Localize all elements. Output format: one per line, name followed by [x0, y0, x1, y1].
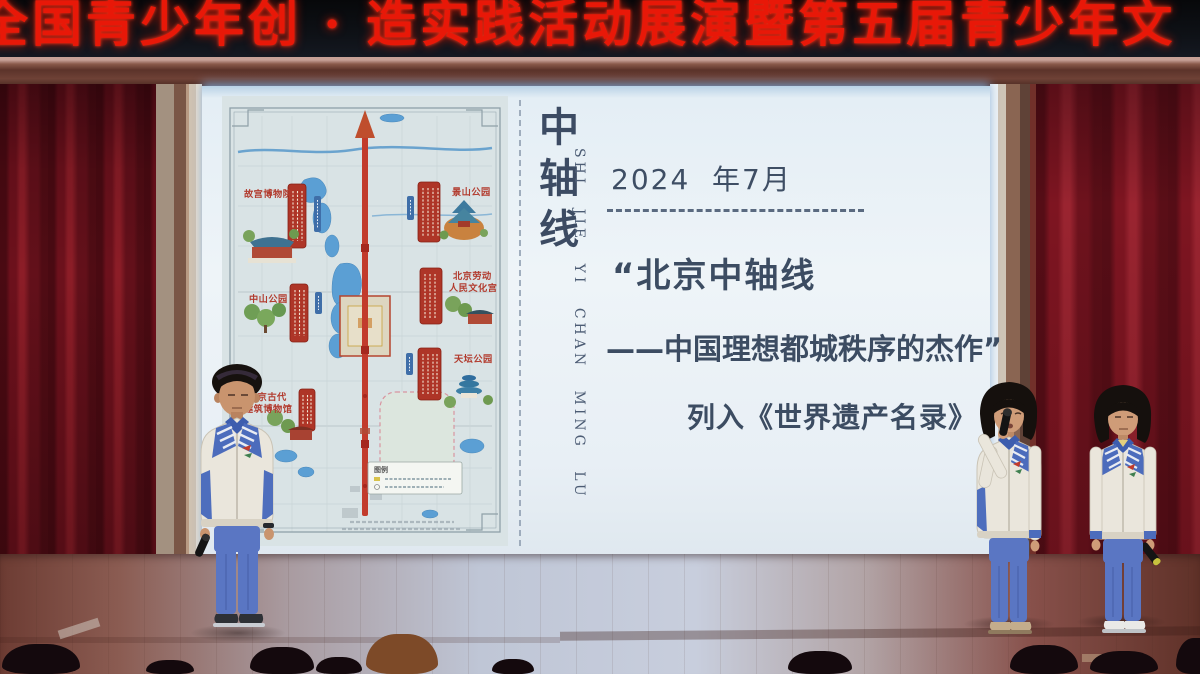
- slide-dashed-rule: [607, 209, 864, 212]
- audience-head: [492, 659, 534, 674]
- curtain-left: [0, 84, 156, 556]
- slide-vertical-divider: [519, 100, 521, 546]
- led-banner: 全国青少年创 · 造实践活动展演暨第五届青少年文: [0, 0, 1200, 57]
- audience-head: [250, 647, 314, 674]
- girl2-left-arm: [1144, 447, 1156, 539]
- audience-head: [1176, 638, 1200, 674]
- label-palace-museum: 故宫博物院: [244, 188, 293, 200]
- boy-sneakers: [213, 614, 265, 627]
- boy-pants: [214, 526, 260, 614]
- label-temple-of-heaven: 天坛公园: [454, 353, 493, 365]
- audience-head: [366, 634, 438, 674]
- slide-vertical-pinyin: SHI JIE YI CHAN MING LU: [571, 148, 587, 500]
- boy-microphone-icon: [194, 533, 211, 558]
- girl2-pants: [1103, 539, 1143, 621]
- stage-photo: 全国青少年创 · 造实践活动展演暨第五届青少年文: [0, 0, 1200, 674]
- girl1-left-arm: [1029, 446, 1041, 540]
- audience-head: [146, 660, 194, 674]
- map-legend: 图例: [368, 462, 462, 494]
- banner-text: 全国青少年创 · 造实践活动展演暨第五届青少年文: [0, 0, 1176, 56]
- slide-date: 2024 年7月: [611, 158, 792, 198]
- student-girl-speaking: [963, 380, 1055, 630]
- slide-quote-line-1: “北京中轴线: [612, 248, 816, 297]
- projection-screen: 图例 故宫博物院 景山公园 中山公园 北京劳动 人民文化宫 天坛公园 北京古代: [202, 86, 990, 558]
- label-jingshan-park: 景山公园: [452, 186, 491, 198]
- audience-head: [1010, 645, 1078, 674]
- boy-watch: [263, 523, 274, 528]
- legend-title: 图例: [374, 465, 388, 474]
- student-girl-right: [1078, 383, 1168, 629]
- student-boy: [190, 362, 284, 638]
- label-zhongshan-park: 中山公园: [249, 293, 288, 305]
- audience-head: [316, 657, 362, 674]
- slide-result-line: 列入《世界遗产名录》: [687, 396, 977, 436]
- label-working-peoples-palace-2: 人民文化宫: [449, 282, 497, 294]
- slide-quote-line-2: ——中国理想都城秩序的杰作”: [606, 326, 1002, 368]
- audience-head: [788, 651, 852, 674]
- girl2-right-arm: [1090, 447, 1102, 539]
- audience-head: [2, 644, 80, 674]
- audience-row: [0, 630, 1200, 674]
- audience-head: [1090, 651, 1158, 674]
- girl1-pants: [989, 538, 1029, 622]
- label-working-peoples-palace-1: 北京劳动: [453, 270, 492, 282]
